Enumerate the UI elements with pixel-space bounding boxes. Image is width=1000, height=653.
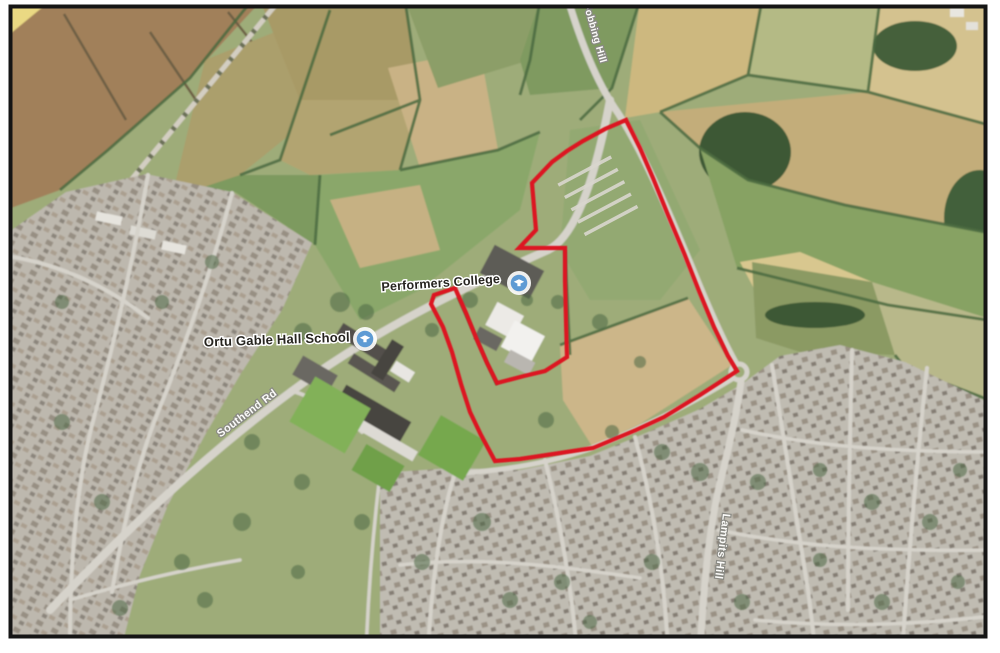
tree-blob (644, 554, 660, 570)
tree-blob (155, 295, 169, 309)
tree-blob (112, 600, 128, 616)
tree-blob (94, 494, 110, 510)
tree-blob (864, 494, 880, 510)
tree-blob (291, 565, 305, 579)
performers-college-marker (507, 271, 531, 295)
field-olive-2 (280, 100, 420, 175)
tree-blob (551, 295, 565, 309)
tree-blob (734, 594, 750, 610)
tree-blob (354, 514, 370, 530)
tree-blob (634, 356, 646, 368)
tree-blob (174, 554, 190, 570)
tree-blob (951, 575, 965, 589)
tree-blob (294, 474, 310, 490)
terrain-layer (0, 0, 1000, 653)
tree-blob (330, 292, 350, 312)
tree-blob (654, 444, 670, 460)
tree-blob (592, 314, 608, 330)
tree-blob (922, 514, 938, 530)
tree-blob (54, 414, 70, 430)
tree-blob (244, 434, 260, 450)
map-content: Southend RdFobbing HillLampits HillPerfo… (0, 0, 1000, 653)
tree-blob (554, 574, 570, 590)
tree-blob (233, 513, 251, 531)
woodland-ne (873, 21, 957, 71)
gable-hall-school-marker (353, 327, 377, 351)
tree-blob (538, 412, 554, 428)
tree-blob (55, 295, 69, 309)
tree-blob (197, 592, 213, 608)
tree-blob (813, 463, 827, 477)
tree-blob (502, 592, 518, 608)
map-figure: Southend RdFobbing HillLampits HillPerfo… (0, 0, 1000, 653)
tree-blob (874, 594, 890, 610)
tree-blob (691, 463, 709, 481)
tree-blob (414, 554, 430, 570)
tree-blob (205, 255, 219, 269)
satellite-map-canvas: Southend RdFobbing HillLampits HillPerfo… (0, 0, 1000, 653)
graduation-cap-base (363, 340, 366, 343)
tree-blob (953, 463, 967, 477)
tree-blob (425, 323, 439, 337)
tree-blob (473, 513, 491, 531)
tree-blob (813, 553, 827, 567)
tree-row-east (765, 302, 865, 328)
graduation-cap-base (517, 284, 520, 287)
tree-blob (358, 304, 374, 320)
tree-blob (583, 615, 597, 629)
tree-blob (750, 474, 766, 490)
tree-blob (521, 294, 533, 306)
